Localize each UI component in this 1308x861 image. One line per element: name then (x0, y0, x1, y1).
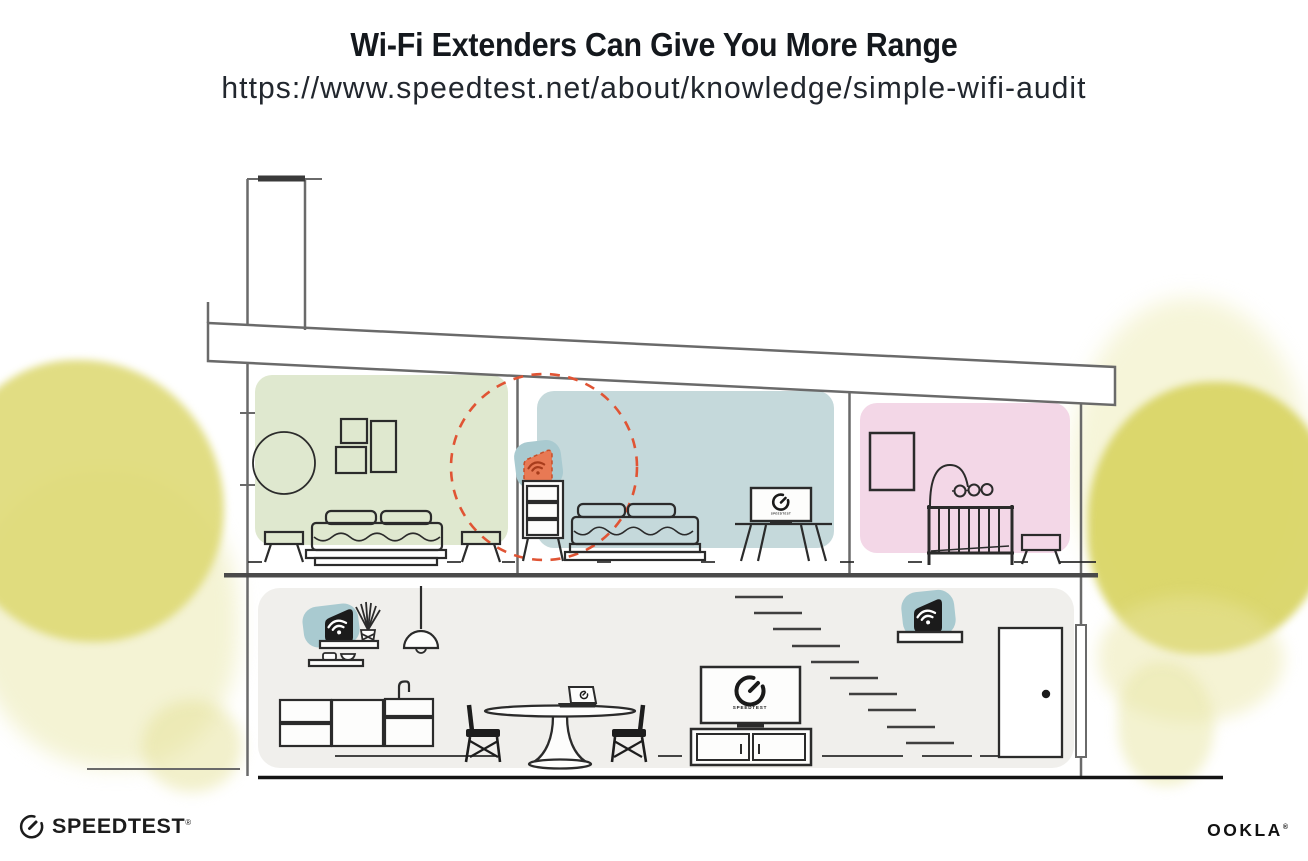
front-door (999, 628, 1062, 757)
speedtest-gauge-icon (18, 813, 45, 840)
drawer (280, 724, 331, 746)
media-console (691, 729, 811, 765)
drawer (280, 700, 331, 722)
ground-lines (87, 769, 1223, 778)
registered-mark: ® (185, 818, 192, 827)
chimney-cap (258, 176, 305, 182)
bed-base (306, 550, 446, 558)
speedtest-wordmark: SPEEDTEST® (52, 814, 192, 839)
floor-slab (224, 573, 1098, 578)
dresser (523, 481, 563, 561)
cabinet-door (332, 700, 383, 746)
registered-mark: ® (1283, 824, 1288, 831)
wall-shelf (898, 632, 962, 642)
bedroom-tv: SPEEDTEST (751, 488, 811, 524)
living-room-tv-group: SPEEDTEST (691, 667, 811, 765)
laptop-base (558, 703, 597, 708)
house-cross-section: SPEEDTEST (0, 0, 1308, 861)
infographic-page: Wi-Fi Extenders Can Give You More Range … (0, 0, 1308, 861)
ookla-logo: OOKLA® (1207, 820, 1288, 841)
bed-base-lower (315, 558, 437, 565)
door-knob (1042, 690, 1050, 698)
bed-base-lower (565, 552, 705, 560)
speedtest-logo: SPEEDTEST® (18, 813, 192, 840)
tv-screen-label: SPEEDTEST (771, 512, 791, 516)
drawer (385, 699, 433, 716)
stool (1022, 535, 1060, 564)
downspout (1076, 625, 1086, 757)
cabinet-door (385, 718, 433, 746)
tv-screen-label: SPEEDTEST (733, 705, 768, 710)
wall-shelf (309, 660, 363, 666)
wall-shelf (320, 641, 378, 648)
tv-stand-bar (737, 724, 764, 728)
